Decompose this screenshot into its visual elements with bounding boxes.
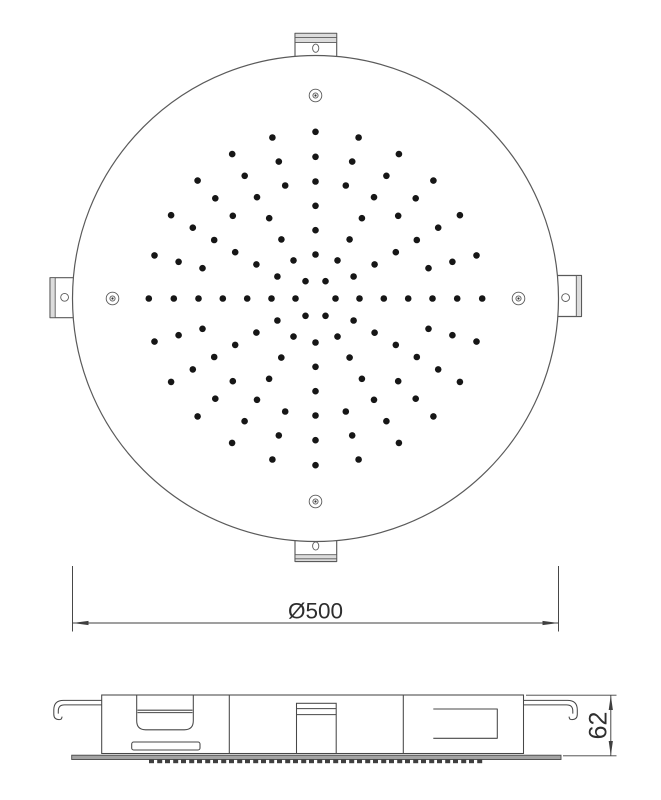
nozzle-dot — [241, 418, 248, 425]
arrowhead-up — [609, 695, 613, 710]
nozzle-dot — [290, 333, 297, 340]
nozzle-dot — [282, 408, 289, 415]
nozzle-dot — [254, 397, 261, 404]
nozzle-tooth — [317, 759, 322, 763]
nozzle-dot — [302, 278, 309, 285]
nozzle-dot — [355, 456, 362, 463]
nozzle-dot — [266, 215, 273, 222]
mounting-clip-right — [524, 700, 578, 719]
diameter-label: Ø500 — [288, 599, 343, 624]
nozzle-dot — [168, 212, 175, 219]
nozzle-dot — [371, 194, 378, 201]
nozzle-dot — [454, 295, 461, 302]
nozzle-dot — [435, 366, 442, 373]
nozzle-dot — [414, 237, 421, 244]
nozzle-tooth — [157, 759, 162, 763]
nozzle-dot — [473, 252, 480, 259]
tab-fold-band — [296, 555, 337, 561]
nozzle-dot — [278, 354, 285, 361]
nozzle-dot — [199, 265, 206, 272]
drawing-canvas: Ø500 — [0, 0, 661, 800]
nozzle-dot — [312, 364, 319, 371]
nozzle-dot — [425, 265, 432, 272]
nozzle-dot — [312, 251, 319, 258]
nozzle-tooth — [389, 759, 394, 763]
nozzle-tooth — [237, 759, 242, 763]
nozzle-dot — [405, 295, 412, 302]
tab-hole — [562, 294, 570, 302]
nozzle-dot — [211, 354, 218, 361]
nozzle-tooth — [405, 759, 410, 763]
nozzle-dot — [457, 379, 464, 386]
nozzle-tooth — [221, 759, 226, 763]
arrowhead-left — [73, 621, 89, 625]
nozzle-tooth — [309, 759, 314, 763]
nozzle-dot — [266, 376, 273, 383]
nozzle-tooth — [197, 759, 202, 763]
nozzle-dot — [302, 313, 309, 320]
nozzle-tooth — [445, 759, 450, 763]
nozzle-tooth — [357, 759, 362, 763]
nozzle-dot — [276, 158, 283, 165]
nozzle-tooth — [285, 759, 290, 763]
nozzle-dot — [412, 395, 419, 402]
nozzle-tooth — [173, 759, 178, 763]
nozzle-dot — [194, 177, 201, 184]
nozzle-dot — [395, 213, 402, 220]
nozzle-dot — [269, 456, 276, 463]
nozzle-dot — [396, 151, 403, 158]
nozzle-dot — [146, 295, 153, 302]
nozzle-dot — [371, 397, 378, 404]
nozzle-tooth — [421, 759, 426, 763]
nozzle-dot — [171, 295, 178, 302]
nozzle-dot — [268, 295, 275, 302]
nozzle-dot — [457, 212, 464, 219]
nozzle-dot — [151, 338, 158, 345]
side-view: 62 — [54, 695, 617, 763]
nozzle-tooth — [349, 759, 354, 763]
nozzle-tooth — [461, 759, 466, 763]
nozzle-dot — [430, 177, 437, 184]
screw-hole-center — [314, 500, 316, 502]
nozzle-dot — [350, 317, 357, 324]
nozzle-dot — [349, 432, 356, 439]
screw-hole-center — [314, 94, 316, 96]
nozzle-tooth — [413, 759, 418, 763]
nozzle-tooth — [205, 759, 210, 763]
nozzle-tooth — [429, 759, 434, 763]
nozzle-dot — [412, 195, 419, 202]
nozzle-dot — [449, 259, 456, 266]
plan-view: Ø500 — [50, 33, 582, 631]
nozzle-dot — [449, 332, 456, 339]
nozzle-dot — [359, 215, 366, 222]
nozzle-dot — [211, 237, 218, 244]
nozzle-dot — [274, 273, 281, 280]
nozzle-tooth — [165, 759, 170, 763]
nozzle-dot — [371, 329, 378, 336]
arrowhead-down — [609, 741, 613, 756]
nozzle-tooth — [277, 759, 282, 763]
nozzle-dot — [220, 295, 227, 302]
nozzle-dot — [473, 338, 480, 345]
nozzle-tooth — [373, 759, 378, 763]
nozzle-dot — [430, 413, 437, 420]
nozzle-dot — [312, 339, 319, 346]
diameter-dimension: Ø500 — [73, 566, 559, 632]
nozzle-dot — [346, 236, 353, 243]
nozzle-tooth — [341, 759, 346, 763]
nozzle-dot — [175, 332, 182, 339]
nozzle-tooth — [149, 759, 154, 763]
nozzle-dot — [253, 329, 260, 336]
nozzle-dot — [241, 173, 248, 180]
tab-fold-band — [51, 278, 56, 317]
tab-hole — [313, 44, 319, 52]
nozzle-dot — [381, 295, 388, 302]
drawing-sheet: Ø500 — [0, 0, 661, 800]
nozzle-dot — [254, 194, 261, 201]
nozzle-dot — [276, 432, 283, 439]
nozzle-dot — [395, 378, 402, 385]
nozzle-dot — [332, 295, 339, 302]
nozzle-dot — [312, 203, 319, 210]
nozzle-dot — [356, 295, 363, 302]
nozzle-dot — [355, 134, 362, 141]
tab-hole — [61, 293, 69, 301]
screw-hole-center — [111, 297, 113, 299]
nozzle-dot — [151, 252, 158, 259]
nozzle-tooth — [477, 759, 482, 763]
nozzle-tooth — [261, 759, 266, 763]
nozzle-dot — [232, 342, 239, 349]
nozzle-dot — [290, 257, 297, 264]
nozzle-dot — [349, 158, 356, 165]
nozzle-dot — [322, 313, 329, 320]
height-label: 62 — [585, 712, 613, 740]
clip-inner — [58, 705, 101, 714]
nozzle-dot — [322, 278, 329, 285]
nozzle-dot — [269, 134, 276, 141]
nozzle-dot — [429, 295, 436, 302]
clip-outer — [54, 700, 102, 719]
nozzle-dot — [312, 154, 319, 161]
nozzle-dot — [312, 178, 319, 185]
height-dimension: 62 — [526, 695, 617, 756]
nozzle-dot — [343, 408, 350, 415]
mounting-clip-left — [54, 700, 102, 719]
inlet-block — [297, 703, 337, 753]
nozzle-dot — [425, 326, 432, 333]
nozzle-tooth — [381, 759, 386, 763]
nozzle-dot — [194, 413, 201, 420]
arrowhead-right — [543, 621, 559, 625]
nozzle-dot — [312, 437, 319, 444]
nozzle-dot — [383, 418, 390, 425]
nozzle-dot — [229, 151, 236, 158]
nozzle-dot — [190, 224, 197, 231]
nozzle-dot — [175, 259, 182, 266]
nozzle-dot — [371, 261, 378, 268]
nozzle-tooth — [453, 759, 458, 763]
nozzle-tooth — [269, 759, 274, 763]
nozzle-tooth — [365, 759, 370, 763]
nozzle-tooth — [301, 759, 306, 763]
tab-hole — [313, 542, 319, 550]
nozzle-dot — [253, 261, 260, 268]
nozzle-dot — [312, 129, 319, 136]
mounting-tab-left — [50, 278, 73, 318]
inlet-outline — [297, 703, 337, 753]
nozzle-tooth — [293, 759, 298, 763]
clip-inner — [524, 705, 573, 714]
nozzle-dot — [232, 249, 239, 256]
screw-hole-center — [517, 297, 519, 299]
nozzle-dot — [396, 440, 403, 447]
nozzle-tooth — [437, 759, 442, 763]
nozzle-dot — [346, 354, 353, 361]
nozzle-dot — [195, 295, 202, 302]
nozzle-dot — [312, 412, 319, 419]
nozzle-dot — [479, 295, 486, 302]
nozzle-dot — [168, 379, 175, 386]
faceplate-bar — [72, 755, 561, 759]
nozzle-dot — [334, 257, 341, 264]
nozzle-dot — [278, 236, 285, 243]
nozzle-dot — [230, 378, 237, 385]
nozzle-dot — [435, 224, 442, 231]
nozzle-dot — [229, 440, 236, 447]
nozzle-dot — [350, 273, 357, 280]
nozzle-dot — [343, 182, 350, 189]
nozzle-dot — [393, 342, 400, 349]
nozzle-dot — [334, 333, 341, 340]
nozzle-dot — [199, 326, 206, 333]
nozzle-dot — [312, 227, 319, 234]
clip-outer — [524, 700, 578, 719]
nozzle-dot — [212, 195, 219, 202]
nozzle-dot — [274, 317, 281, 324]
mounting-tab-top — [295, 33, 337, 57]
shower-plate-outline — [73, 56, 559, 542]
nozzle-dot — [383, 173, 390, 180]
nozzle-dot — [414, 354, 421, 361]
nozzle-tooth — [325, 759, 330, 763]
nozzle-dot — [244, 295, 251, 302]
nozzle-dot — [312, 388, 319, 395]
nozzle-tooth — [469, 759, 474, 763]
nozzle-tooth — [229, 759, 234, 763]
nozzle-tooth — [397, 759, 402, 763]
nozzle-tooth — [253, 759, 258, 763]
nozzle-dot — [282, 182, 289, 189]
tab-fold-band — [576, 276, 581, 316]
nozzle-tooth — [189, 759, 194, 763]
nozzle-teeth-row — [149, 759, 482, 763]
nozzle-tooth — [181, 759, 186, 763]
tab-fold-band — [296, 34, 337, 43]
nozzle-dot — [230, 213, 237, 220]
nozzle-dot — [212, 395, 219, 402]
nozzle-tooth — [213, 759, 218, 763]
nozzle-dot — [393, 249, 400, 256]
nozzle-tooth — [333, 759, 338, 763]
nozzle-dot — [312, 462, 319, 469]
nozzle-tooth — [245, 759, 250, 763]
mounting-tab-bottom — [295, 540, 337, 562]
nozzle-dot — [292, 295, 299, 302]
nozzle-dot — [359, 376, 366, 383]
mounting-tab-right — [558, 276, 582, 317]
nozzle-dot — [190, 366, 197, 373]
